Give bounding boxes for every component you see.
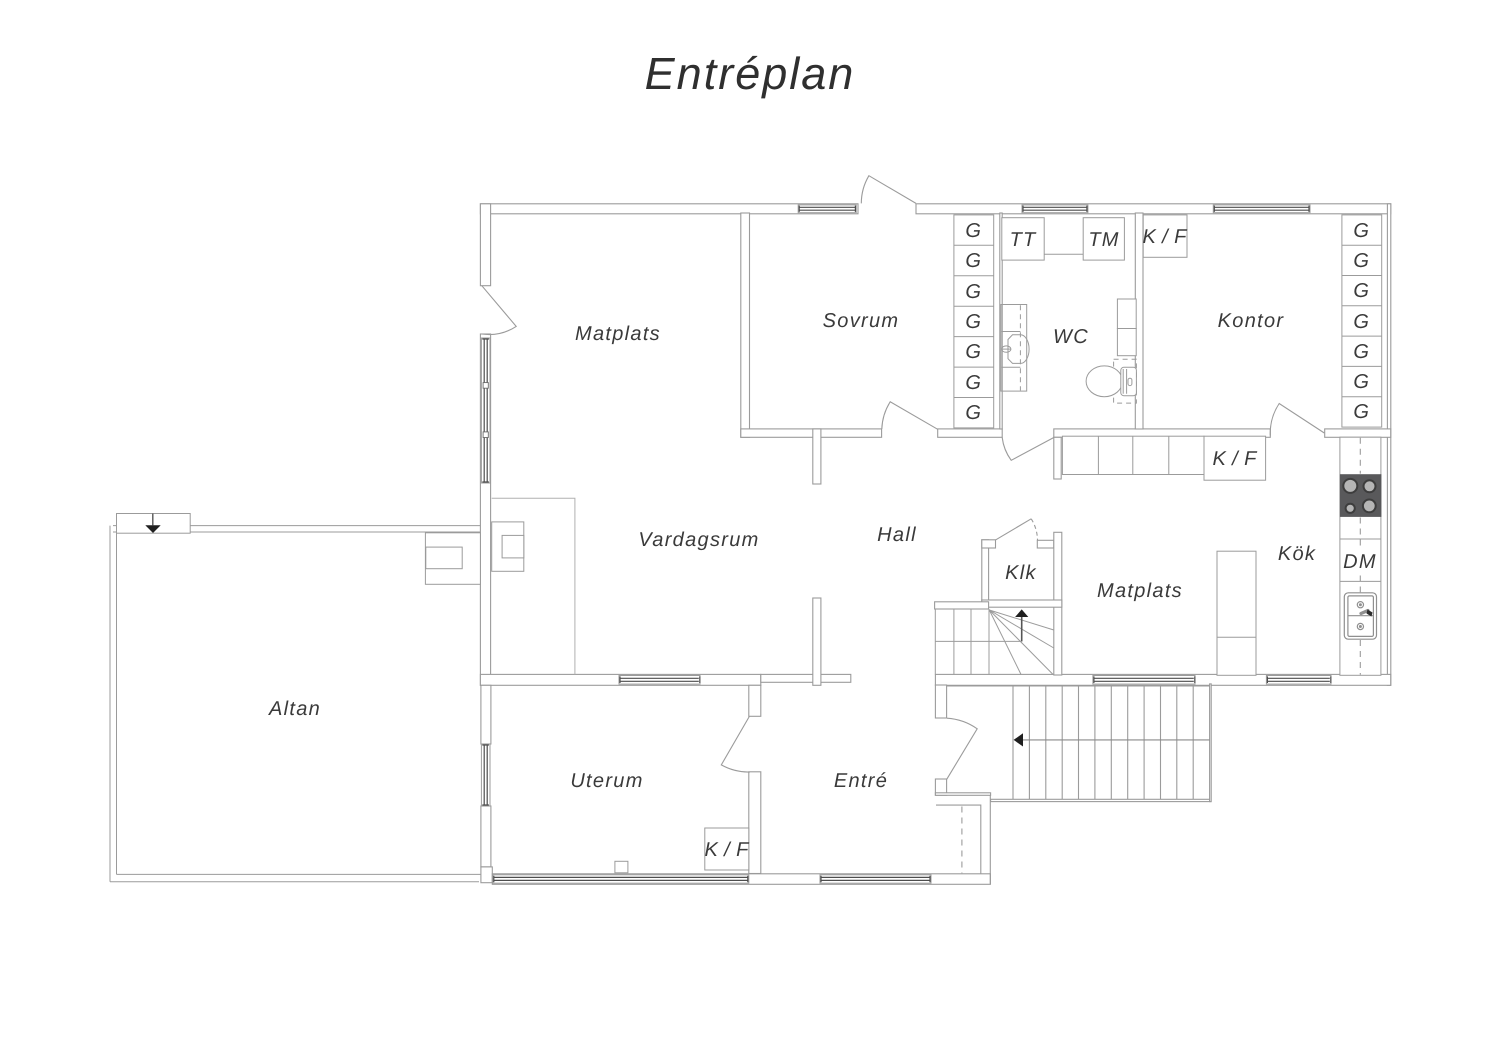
svg-text:Klk: Klk xyxy=(1005,562,1037,584)
svg-text:K / F: K / F xyxy=(1142,226,1188,248)
svg-text:G: G xyxy=(1353,341,1370,363)
svg-text:K / F: K / F xyxy=(704,839,750,861)
svg-text:Entré: Entré xyxy=(834,770,888,792)
svg-text:G: G xyxy=(965,311,982,333)
svg-text:G: G xyxy=(965,402,982,424)
svg-text:G: G xyxy=(1353,250,1370,272)
svg-text:G: G xyxy=(1353,371,1370,393)
svg-text:Vardagsrum: Vardagsrum xyxy=(638,529,759,551)
svg-text:Matplats: Matplats xyxy=(1097,580,1183,602)
svg-text:G: G xyxy=(1353,401,1370,423)
svg-text:G: G xyxy=(965,220,982,242)
svg-text:G: G xyxy=(965,281,982,303)
svg-text:G: G xyxy=(965,372,982,394)
svg-text:Kontor: Kontor xyxy=(1218,310,1285,332)
svg-text:TM: TM xyxy=(1088,229,1119,251)
svg-text:K / F: K / F xyxy=(1212,448,1258,470)
svg-text:G: G xyxy=(1353,280,1370,302)
svg-text:G: G xyxy=(1353,220,1370,242)
svg-text:Altan: Altan xyxy=(268,698,321,720)
svg-text:Uterum: Uterum xyxy=(570,770,643,792)
svg-text:Sovrum: Sovrum xyxy=(823,310,900,332)
svg-text:DM: DM xyxy=(1343,551,1377,573)
svg-text:WC: WC xyxy=(1053,326,1089,348)
svg-text:Kök: Kök xyxy=(1278,543,1316,565)
svg-text:G: G xyxy=(1353,311,1370,333)
svg-text:G: G xyxy=(965,250,982,272)
svg-text:Hall: Hall xyxy=(877,524,917,546)
svg-text:TT: TT xyxy=(1010,229,1037,251)
svg-text:G: G xyxy=(965,341,982,363)
svg-text:Matplats: Matplats xyxy=(575,323,661,345)
svg-text:Entréplan: Entréplan xyxy=(645,48,856,99)
